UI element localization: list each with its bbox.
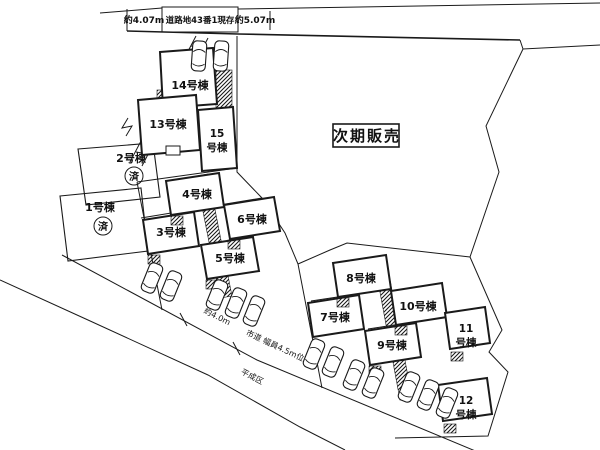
site-northeast-boundary bbox=[520, 40, 600, 49]
car-icon bbox=[416, 378, 440, 411]
car-icon bbox=[342, 358, 366, 391]
lot-7-label: 7号棟 bbox=[320, 310, 351, 324]
car-icon bbox=[321, 345, 345, 378]
lot-11-label-line2: 号棟 bbox=[456, 336, 477, 349]
lot-10-label: 10号棟 bbox=[399, 299, 437, 313]
lot-1: 1号棟 済 bbox=[60, 188, 148, 261]
car-icon bbox=[213, 41, 229, 72]
car-icon bbox=[361, 366, 385, 399]
road-upper-edge bbox=[62, 255, 485, 450]
car-icon bbox=[159, 269, 183, 302]
hatch-porch bbox=[171, 216, 183, 225]
lot-13-label: 13号棟 bbox=[149, 117, 187, 131]
north-cluster: 14号棟 13号棟 15 号棟 bbox=[138, 41, 237, 171]
hatch-parking bbox=[216, 70, 232, 110]
site-plan-page: 約4.07m 道路地43番1現存 約5.07m 次期販売 約4.0m 市道 幅員… bbox=[0, 0, 600, 450]
lot-4-label: 4号棟 bbox=[182, 187, 213, 201]
lot-9-label: 9号棟 bbox=[377, 338, 408, 352]
hatch-porch bbox=[228, 240, 240, 249]
lot-5-label: 5号棟 bbox=[215, 251, 246, 265]
parcel-note: 道路地43番1現存 bbox=[166, 15, 235, 26]
right-cluster: 8号棟 10号棟 7号棟 9号棟 11 号棟 12 号棟 bbox=[298, 255, 508, 438]
hatch-porch bbox=[337, 298, 349, 307]
lot-3-label: 3号棟 bbox=[156, 225, 187, 239]
top-road: 約4.07m 道路地43番1現存 約5.07m bbox=[100, 3, 600, 49]
site-plan-drawing: 約4.07m 道路地43番1現存 約5.07m 次期販売 約4.0m 市道 幅員… bbox=[0, 0, 600, 450]
boundary-mark bbox=[122, 118, 132, 136]
top-road-line bbox=[238, 3, 600, 9]
lot-1-sold-mark: 済 bbox=[98, 220, 109, 233]
lot-11-label-line1: 11 bbox=[459, 323, 474, 335]
lot-6-label: 6号棟 bbox=[237, 212, 268, 226]
site-north-boundary bbox=[127, 31, 520, 40]
future-sale-label: 次期販売 bbox=[333, 127, 401, 145]
car-icon bbox=[191, 41, 207, 72]
road-lower-edge bbox=[0, 280, 345, 450]
lot-12-label-line1: 12 bbox=[459, 395, 474, 407]
top-road-line bbox=[100, 8, 162, 13]
lot-15-label-line1: 15 bbox=[210, 128, 225, 140]
hatch-porch bbox=[395, 326, 407, 335]
future-sale-east-boundary bbox=[470, 49, 523, 257]
lot-14-label: 14号棟 bbox=[171, 78, 209, 92]
lot-15-label-line2: 号棟 bbox=[207, 141, 228, 154]
lot-8-label: 8号棟 bbox=[346, 271, 377, 285]
hatch-porch bbox=[451, 352, 463, 361]
lot-1-label: 1号棟 bbox=[85, 200, 116, 214]
hatch-porch bbox=[444, 424, 456, 433]
lot-13-porch bbox=[166, 146, 180, 155]
lot-2-sold-mark: 済 bbox=[129, 170, 140, 183]
road-area-note: 平成区 bbox=[239, 366, 265, 386]
car-icon bbox=[140, 261, 164, 294]
road-width-right: 約5.07m bbox=[235, 14, 276, 26]
lot-12-label-line2: 号棟 bbox=[456, 408, 477, 421]
middle-cluster: 4号棟 6号棟 3号棟 5号棟 bbox=[137, 168, 280, 328]
road-width-left: 約4.07m bbox=[124, 14, 165, 26]
